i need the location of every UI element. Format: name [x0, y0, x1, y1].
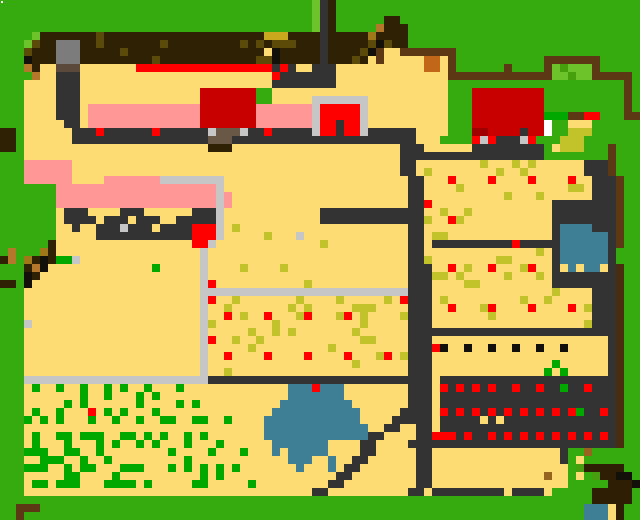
farm-map-canvas[interactable]	[0, 0, 640, 520]
farm-map	[0, 0, 640, 520]
